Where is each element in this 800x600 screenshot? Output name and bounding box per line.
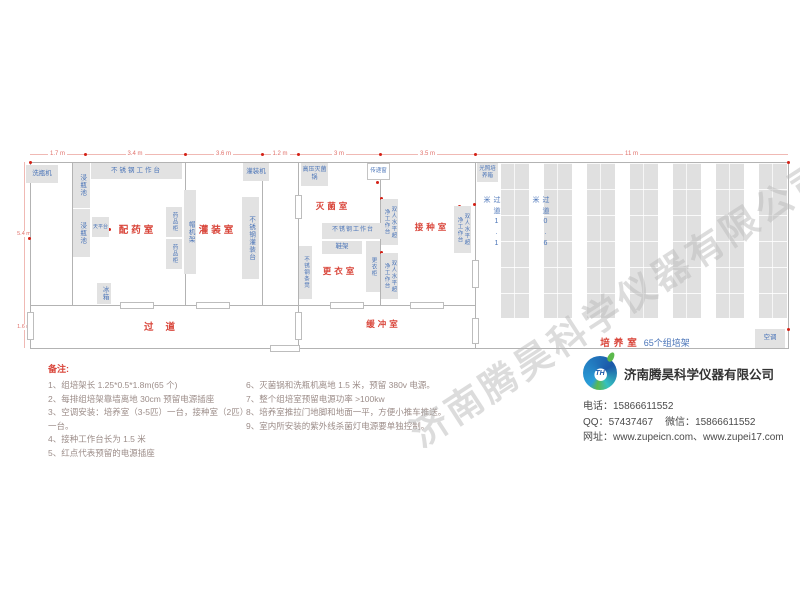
note-item: 5、红点代表预留的电源插座 xyxy=(48,447,246,461)
wechat-label: 微信： xyxy=(665,417,695,428)
room-label-inocul: 接种室 xyxy=(406,221,458,233)
wall-right xyxy=(788,162,789,349)
culture-rack xyxy=(587,163,615,318)
wall-fill-right xyxy=(262,162,263,305)
notes-section: 备注: 1、组培架长 1.25*0.5*1.8m(65 个) 2、每排组培架靠墙… xyxy=(48,362,486,460)
air-conditioner: 空调 xyxy=(755,329,785,348)
room-label-dress: 更衣室 xyxy=(314,265,366,277)
dimension-label: 1.7 m xyxy=(30,150,85,158)
pass-through-window: 传递窗 xyxy=(367,163,390,180)
room-label-fill: 灌装室 xyxy=(190,222,245,236)
outlet-dot xyxy=(474,153,477,156)
room-label-buffer: 缓冲室 xyxy=(356,318,411,330)
company-qq-line: QQ：57437467微信：15866611552 xyxy=(583,415,798,431)
filling-machine: 灌装机 xyxy=(243,163,269,181)
dimension-label: 3.5 m xyxy=(380,150,475,158)
bottle-washer: 洗瓶机 xyxy=(26,165,58,183)
outlet-dot xyxy=(184,153,187,156)
stainless-bench-seat: 不锈钢条凳 xyxy=(299,246,312,299)
note-item: 2、每排组培架靠墙离地 30cm 预留电源插座 xyxy=(48,393,246,407)
note-item: 6、灭菌锅和洗瓶机离地 1.5 米，预留 380v 电源。 xyxy=(246,379,486,393)
note-item: 4、接种工作台长为 1.5 米 xyxy=(48,433,246,447)
stainless-workbench-mid: 不锈钢工作台 xyxy=(322,223,384,239)
door-dress-room xyxy=(330,302,364,309)
aisle-label-1-1m: 过道1.1米 xyxy=(481,196,501,258)
clean-bench-1: 双人水平超净工作台 xyxy=(381,199,398,245)
stainless-filling-bench: 不锈钢灌装台 xyxy=(242,197,259,279)
culture-rack xyxy=(501,163,529,318)
fridge: 冰箱 xyxy=(97,283,111,304)
door-prep-room xyxy=(120,302,154,309)
outlet-dot xyxy=(376,181,379,184)
room-label-steril: 灭菌室 xyxy=(307,200,359,212)
door-culture-upper xyxy=(472,260,479,288)
locker: 更衣柜 xyxy=(366,241,380,292)
room-label-corridor: 过道 xyxy=(128,319,203,333)
dimension-label: 11 m xyxy=(475,150,788,158)
door-culture-lower xyxy=(472,318,479,344)
outlet-dot xyxy=(28,237,31,240)
culture-rack-count: 65个组培架 xyxy=(644,338,690,348)
web-label: 网址： xyxy=(583,432,613,443)
website-2: www.zupei17.com xyxy=(703,432,784,443)
web-separator: 、 xyxy=(693,432,703,443)
company-name: 济南腾昊科学仪器有限公司 xyxy=(624,364,774,383)
phone-label: 电话： xyxy=(583,401,613,412)
note-item: 9、室内所安装的紫外线杀菌灯电源要单独控制。 xyxy=(246,420,486,434)
outlet-dot xyxy=(297,153,300,156)
shoe-rack: 鞋架 xyxy=(322,241,362,254)
culture-rack xyxy=(630,163,658,318)
outlet-dot xyxy=(473,203,476,206)
culture-rack xyxy=(673,163,701,318)
notes-heading: 备注: xyxy=(48,362,486,375)
door-corridor-left xyxy=(27,312,34,340)
logo-monogram: TH xyxy=(583,356,617,390)
note-item: 3、空调安装：培养室（3-5匹）一台，接种室（2匹）一台。 xyxy=(48,406,246,433)
dimension-label: 3 m xyxy=(298,150,380,158)
door-buffer-left xyxy=(295,312,302,340)
dimension-label: 1.2 m xyxy=(262,150,298,158)
room-label-prep: 配药室 xyxy=(110,222,165,236)
light-incubator: 光照培养箱 xyxy=(477,163,498,182)
room-label-culture: 培养室65个组培架 xyxy=(560,333,730,351)
qq-number: 57437467 xyxy=(609,417,654,428)
note-item: 1、组培架长 1.25*0.5*1.8m(65 个) xyxy=(48,379,246,393)
wall-corridor xyxy=(30,305,475,306)
door-steril-left xyxy=(295,195,302,219)
website-1: www.zupeicn.com xyxy=(613,432,693,443)
outlet-dot xyxy=(261,153,264,156)
medicine-cabinet-2: 药品柜 xyxy=(166,239,182,269)
qq-label: QQ： xyxy=(583,417,609,428)
culture-rack xyxy=(759,163,787,318)
dimension-label: 3.4 m xyxy=(85,150,185,158)
autoclave: 高压灭菌锅 xyxy=(301,163,328,186)
door-entrance xyxy=(270,345,300,352)
door-inocul-room xyxy=(410,302,444,309)
outlet-dot xyxy=(787,328,790,331)
culture-room-name: 培养室 xyxy=(600,338,641,349)
wechat-number: 15866611552 xyxy=(695,417,755,428)
phone-number: 15866611552 xyxy=(613,401,673,412)
soak-pool-1: 浸瓶池 xyxy=(73,163,90,208)
company-phone-line: 电话：15866611552 xyxy=(583,399,798,415)
balance-table: 天平台 xyxy=(92,217,109,237)
company-web-line: 网址：www.zupeicn.com、www.zupei17.com xyxy=(583,430,798,446)
outlet-dot xyxy=(29,161,32,164)
aisle-label-0-6m: 过道0.6米 xyxy=(530,196,550,258)
outlet-dot xyxy=(379,153,382,156)
note-item: 8、培养室推拉门地脚和地面一平，方便小推车推送。 xyxy=(246,406,486,420)
company-info: TH 济南腾昊科学仪器有限公司 电话：15866611552 QQ：574374… xyxy=(583,356,798,446)
stainless-workbench-top: 不锈钢工作台 xyxy=(91,163,182,179)
company-logo: TH xyxy=(583,356,617,390)
clean-bench-2: 双人水平超净工作台 xyxy=(381,253,398,299)
culture-rack xyxy=(716,163,744,318)
note-item: 7、整个组培室预留电源功率 >100kw xyxy=(246,393,486,407)
outlet-dot xyxy=(787,161,790,164)
dimension-label: 3.6 m xyxy=(185,150,262,158)
floor-plan-canvas: 济南腾昊科学仪器有限公司 1.7 m 3.4 m 3.6 m 1.2 m 3 m… xyxy=(0,0,800,600)
outlet-dot xyxy=(84,153,87,156)
medicine-cabinet-1: 药品柜 xyxy=(166,207,182,237)
door-fill-room xyxy=(196,302,230,309)
soak-pool-2: 浸瓶池 xyxy=(73,209,90,257)
